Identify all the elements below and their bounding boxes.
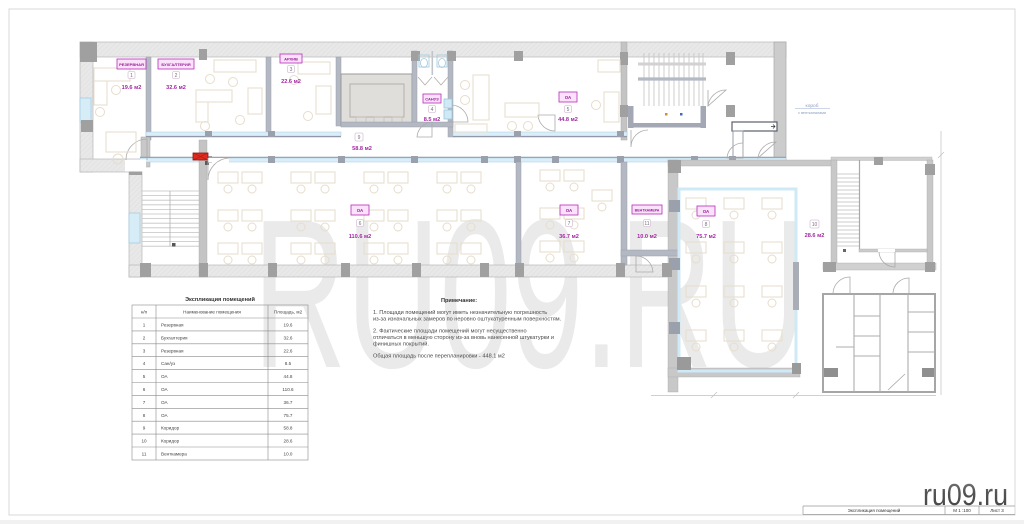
svg-text:короб: короб (806, 103, 819, 109)
svg-text:4: 4 (143, 361, 146, 366)
svg-text:ОА: ОА (565, 95, 572, 100)
svg-text:Коридор: Коридор (161, 426, 180, 431)
svg-text:2: 2 (143, 335, 146, 340)
svg-text:с вентканалами: с вентканалами (798, 111, 826, 115)
svg-text:Бухгалтерия: Бухгалтерия (161, 335, 188, 340)
svg-text:из-за изначальных замеров по н: из-за изначальных замеров по неровно ошт… (373, 317, 562, 323)
svg-text:Примечание:: Примечание: (441, 298, 477, 304)
svg-text:8: 8 (705, 222, 708, 228)
svg-text:ru09.ru: ru09.ru (923, 477, 1008, 512)
svg-text:Экспликация помещений: Экспликация помещений (185, 296, 255, 303)
svg-text:32.6 м2: 32.6 м2 (166, 85, 186, 91)
svg-text:Экспликация помещений: Экспликация помещений (848, 507, 901, 513)
svg-text:36.7: 36.7 (284, 400, 293, 405)
svg-text:ОА: ОА (161, 400, 168, 405)
svg-text:РЕЗЕРВНАЯ: РЕЗЕРВНАЯ (119, 62, 144, 67)
svg-text:2: 2 (175, 73, 178, 79)
svg-text:1. Площади помещений могут име: 1. Площади помещений могут иметь незначи… (373, 309, 547, 316)
svg-text:БУХГАЛТЕРИЯ: БУХГАЛТЕРИЯ (161, 62, 190, 67)
svg-text:44.8 м2: 44.8 м2 (558, 117, 578, 123)
svg-text:9: 9 (143, 426, 146, 431)
svg-text:8.5 м2: 8.5 м2 (424, 117, 441, 123)
svg-text:1: 1 (130, 73, 133, 79)
svg-text:Коридор: Коридор (161, 439, 180, 444)
svg-text:110.6: 110.6 (282, 387, 294, 392)
svg-text:Общая площадь после перепланир: Общая площадь после перепланировки - 448… (373, 354, 505, 360)
svg-text:10: 10 (812, 222, 818, 228)
svg-text:3: 3 (290, 67, 293, 73)
svg-text:36.7 м2: 36.7 м2 (559, 234, 579, 240)
svg-text:ОА: ОА (357, 208, 364, 213)
svg-text:3: 3 (143, 348, 146, 353)
svg-text:ОА: ОА (566, 208, 573, 213)
svg-text:2. Фактические площади помещен: 2. Фактические площади помещений могут н… (373, 328, 527, 335)
svg-text:22.6 м2: 22.6 м2 (281, 79, 301, 85)
svg-text:н/п: н/п (141, 310, 148, 315)
svg-text:32.6: 32.6 (284, 335, 293, 340)
svg-text:28.6 м2: 28.6 м2 (805, 233, 825, 239)
svg-text:22.6: 22.6 (284, 348, 293, 353)
svg-text:ОА: ОА (161, 413, 168, 418)
svg-text:АРХИВ: АРХИВ (284, 57, 298, 62)
svg-text:5: 5 (567, 107, 570, 113)
svg-text:10.0 м2: 10.0 м2 (637, 234, 657, 240)
svg-text:44.8: 44.8 (284, 374, 293, 379)
svg-text:Венткамера: Венткамера (161, 452, 187, 457)
svg-text:10: 10 (141, 439, 147, 444)
svg-text:58.8: 58.8 (284, 426, 293, 431)
svg-text:финишных покрытий.: финишных покрытий. (373, 341, 429, 348)
svg-text:Площадь, м2: Площадь, м2 (274, 310, 303, 315)
svg-text:7: 7 (143, 400, 146, 405)
svg-text:9: 9 (358, 135, 361, 141)
svg-text:75.7 м2: 75.7 м2 (696, 234, 716, 240)
svg-text:8.5: 8.5 (285, 361, 292, 366)
svg-text:5: 5 (143, 374, 146, 379)
svg-text:19.6: 19.6 (284, 323, 293, 328)
svg-text:75.7: 75.7 (284, 413, 293, 418)
svg-text:ОА: ОА (161, 374, 168, 379)
svg-text:Наименование помещения: Наименование помещения (183, 310, 241, 315)
svg-text:19.6 м2: 19.6 м2 (122, 85, 142, 91)
svg-text:ОА: ОА (703, 209, 710, 214)
svg-text:ОА: ОА (161, 387, 168, 392)
svg-text:4: 4 (431, 107, 434, 113)
svg-text:11: 11 (142, 452, 147, 457)
svg-text:6: 6 (143, 387, 146, 392)
svg-text:Резервная: Резервная (161, 348, 184, 353)
svg-text:7: 7 (568, 221, 571, 227)
svg-text:110.6 м2: 110.6 м2 (349, 234, 372, 240)
svg-text:САНУЗ: САНУЗ (425, 97, 439, 102)
svg-text:ВЕНТКАМЕРА: ВЕНТКАМЕРА (635, 209, 660, 213)
svg-text:10.0: 10.0 (284, 452, 293, 457)
svg-text:Сан/уз: Сан/уз (161, 361, 175, 366)
svg-text:28.6: 28.6 (284, 439, 293, 444)
svg-text:58.8 м2: 58.8 м2 (352, 146, 372, 152)
svg-text:8: 8 (143, 413, 146, 418)
svg-text:6: 6 (359, 221, 362, 227)
svg-text:11: 11 (644, 221, 649, 227)
svg-text:Резервная: Резервная (161, 323, 184, 328)
svg-text:1: 1 (143, 323, 146, 328)
svg-text:отличаться в меньшую сторону и: отличаться в меньшую сторону из-за вновь… (373, 334, 554, 341)
